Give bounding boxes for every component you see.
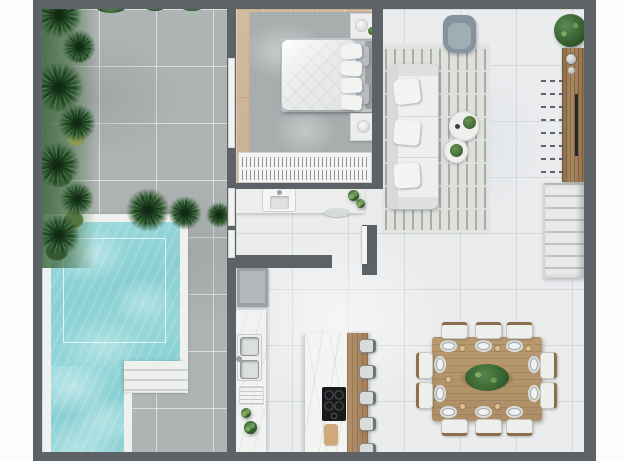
bedroom-terrace-door [228, 58, 235, 148]
bar-stool [359, 365, 376, 379]
table-cup [455, 124, 460, 129]
vanity-plant [356, 199, 365, 208]
place-setting [440, 406, 457, 418]
wardrobe-hanging-clothes [238, 152, 372, 183]
sofa-pillow [393, 162, 421, 189]
media-console [562, 48, 584, 182]
table-cup [526, 346, 531, 351]
dining-chair [506, 419, 533, 436]
bar-stool [359, 391, 376, 405]
wall-bedroom-bottom [236, 183, 383, 189]
vanity-tray [324, 208, 350, 217]
kitchen-counter [233, 310, 266, 452]
bathroom-window [228, 188, 235, 226]
bed-pillow [340, 43, 362, 60]
sink-faucet [277, 190, 282, 195]
table-cup [495, 346, 500, 351]
dining-chair [540, 382, 557, 409]
dining-chair [441, 419, 468, 436]
dish-rack [239, 386, 264, 405]
sink-bowl [270, 196, 289, 209]
table-cup [460, 404, 465, 409]
coffee-table-large [449, 111, 479, 141]
wall-exterior-top [33, 0, 596, 9]
dining-chair [441, 322, 468, 339]
table-cup [446, 377, 451, 382]
wall-bedroom-living [372, 0, 383, 189]
place-setting [440, 340, 457, 352]
floor-plan [0, 0, 624, 461]
bathroom-vanity [236, 187, 364, 213]
sink-faucet [236, 356, 242, 362]
bar-stool [359, 417, 376, 431]
sofa-pillow [393, 119, 421, 146]
place-setting [528, 356, 540, 373]
kitchen-double-sink [237, 334, 262, 381]
armchair-seat [448, 23, 471, 49]
place-setting [506, 406, 523, 418]
place-setting [434, 385, 446, 402]
bathroom-sink [262, 188, 296, 212]
coffee-table-small [444, 139, 468, 163]
pool-corner-steps [124, 361, 188, 392]
table-plant [450, 144, 463, 157]
place-setting [506, 340, 523, 352]
refrigerator [237, 268, 268, 307]
bed-pillow [341, 60, 363, 76]
dining-chair [475, 419, 502, 436]
centerpiece-plant [465, 364, 509, 391]
dining-chair [475, 322, 502, 339]
lounge-armchair [443, 15, 476, 53]
counter-plant [244, 421, 257, 434]
place-setting [475, 406, 492, 418]
cutting-board [324, 424, 338, 445]
refrigerator-door [240, 271, 265, 304]
wall-exterior-left [33, 0, 42, 461]
dining-chair [416, 382, 433, 409]
table-cup [460, 346, 465, 351]
table-lamp [358, 121, 369, 132]
bar-stool-rack [357, 333, 379, 461]
sofa-pillow [393, 78, 422, 106]
bed-pillow [341, 77, 363, 93]
sofa [387, 64, 438, 209]
place-setting [434, 356, 446, 373]
console-knob [568, 67, 575, 74]
dining-table [432, 337, 542, 421]
pool-water-lower [51, 366, 124, 461]
counter-plant [241, 408, 251, 418]
table-plant [463, 116, 476, 129]
place-setting [475, 340, 492, 352]
place-setting [528, 385, 540, 402]
console-handle [575, 94, 578, 156]
dining-chair [540, 352, 557, 379]
bed-pillow [340, 94, 362, 111]
sink-bowl [240, 337, 259, 356]
dining-chair [416, 352, 433, 379]
hall-door-leaf [362, 226, 367, 264]
sink-bowl [240, 360, 259, 379]
potted-plant [554, 14, 587, 47]
table-cup [495, 404, 500, 409]
staircase [543, 183, 584, 278]
induction-cooktop [322, 387, 346, 421]
dining-chair [506, 322, 533, 339]
wall-exterior-right [584, 0, 596, 461]
kitchen-window [228, 230, 235, 258]
stair-void-dashed-lines [541, 80, 565, 178]
console-knob [566, 54, 576, 64]
table-lamp [356, 20, 367, 31]
wall-exterior-bottom [33, 452, 596, 461]
wall-bathroom-bottom [227, 255, 332, 268]
bar-stool [359, 339, 376, 353]
